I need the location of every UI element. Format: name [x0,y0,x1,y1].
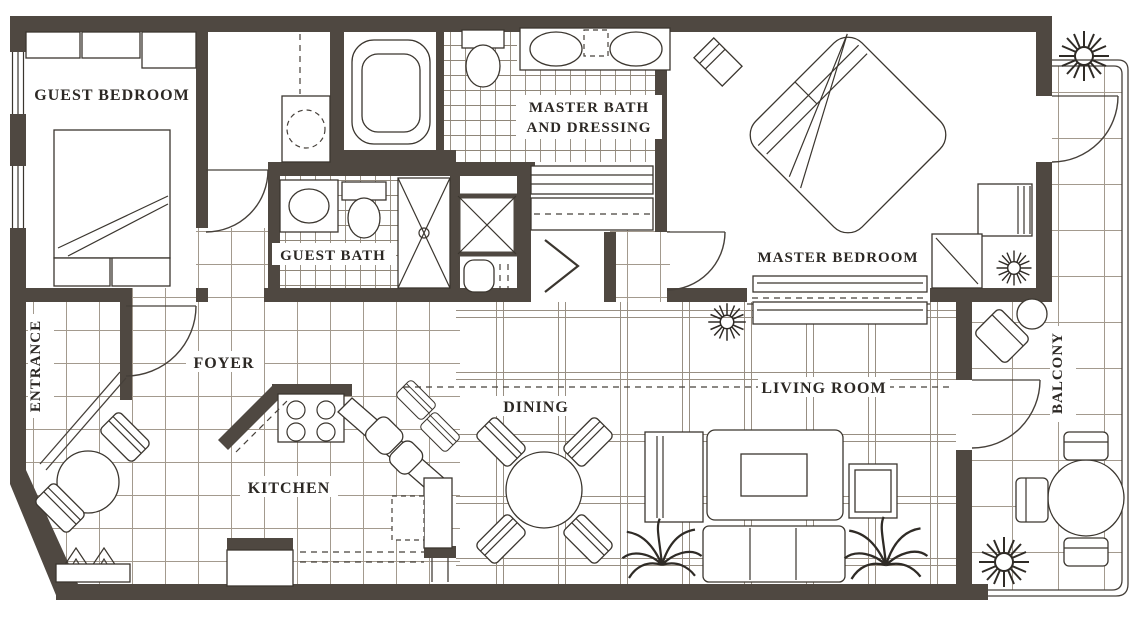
water-heater-icon [287,110,325,148]
guest-bath-label: GUEST BATH [280,248,386,264]
entrance-label: ENTRANCE [28,320,44,412]
dining-label: DINING [503,399,569,416]
bedroom-chair [932,234,982,288]
room-master-bedroom: MASTER BEDROOM [694,29,1032,304]
room-guest-bedroom: GUEST BEDROOM [26,32,196,286]
plant-icon [1059,31,1109,81]
closet-shelf [82,32,140,58]
double-vanity [520,28,670,70]
utility-closet [282,34,330,162]
guest-bed [54,130,170,286]
coffee-table [707,430,843,520]
stove-icon [278,394,344,442]
sofa [703,526,845,582]
living-room-label: LIVING ROOM [761,380,886,397]
closet-shelf [26,32,80,58]
bedroom-chair [978,184,1032,236]
master-hall-floor [610,230,670,302]
door-arc [667,232,725,290]
armchair [645,432,703,522]
sink-icon [289,189,329,223]
plant-icon [997,251,1032,286]
balcony-chair-icon [1016,478,1048,522]
master-bed [742,29,954,241]
balcony-chair-icon [1064,538,1108,566]
balcony-label: BALCONY [1050,332,1066,414]
console-table [753,302,927,324]
room-foyer: FOYER [186,351,264,372]
floor-plan: GUEST BEDROOM GUEST BATH [0,0,1140,638]
nightstand [694,38,742,86]
guest-bedroom-label: GUEST BEDROOM [34,87,189,104]
dresser [747,276,930,304]
door-arc [206,170,268,232]
bidet-icon [464,260,494,292]
entry-bench [56,564,130,582]
bathtub-icon [352,40,430,144]
master-bath-label-1: MASTER BATH [529,100,649,116]
counter-column [424,478,452,548]
master-bath-label-2: AND DRESSING [527,120,652,136]
refrigerator-icon [392,496,424,540]
balcony-chair-icon [1064,432,1108,460]
master-shower-icon [458,196,516,254]
sink-icon [530,32,582,66]
master-bedroom-label: MASTER BEDROOM [757,250,918,266]
dressing-closet-shelves [531,166,653,230]
peninsula-counter [227,550,293,586]
bifold-door-icon [545,240,578,292]
dining-table [506,452,582,528]
side-table [849,464,897,518]
balcony-table [1048,460,1124,536]
floor-plan-drawing: GUEST BEDROOM GUEST BATH [0,0,1140,638]
shower-icon [398,178,450,288]
closet [142,32,196,68]
sink-icon [610,32,662,66]
foyer-label: FOYER [194,355,255,372]
balcony-floor-upper [1052,66,1122,306]
kitchen-label: KITCHEN [248,480,331,497]
balcony-side-table [1017,299,1047,329]
